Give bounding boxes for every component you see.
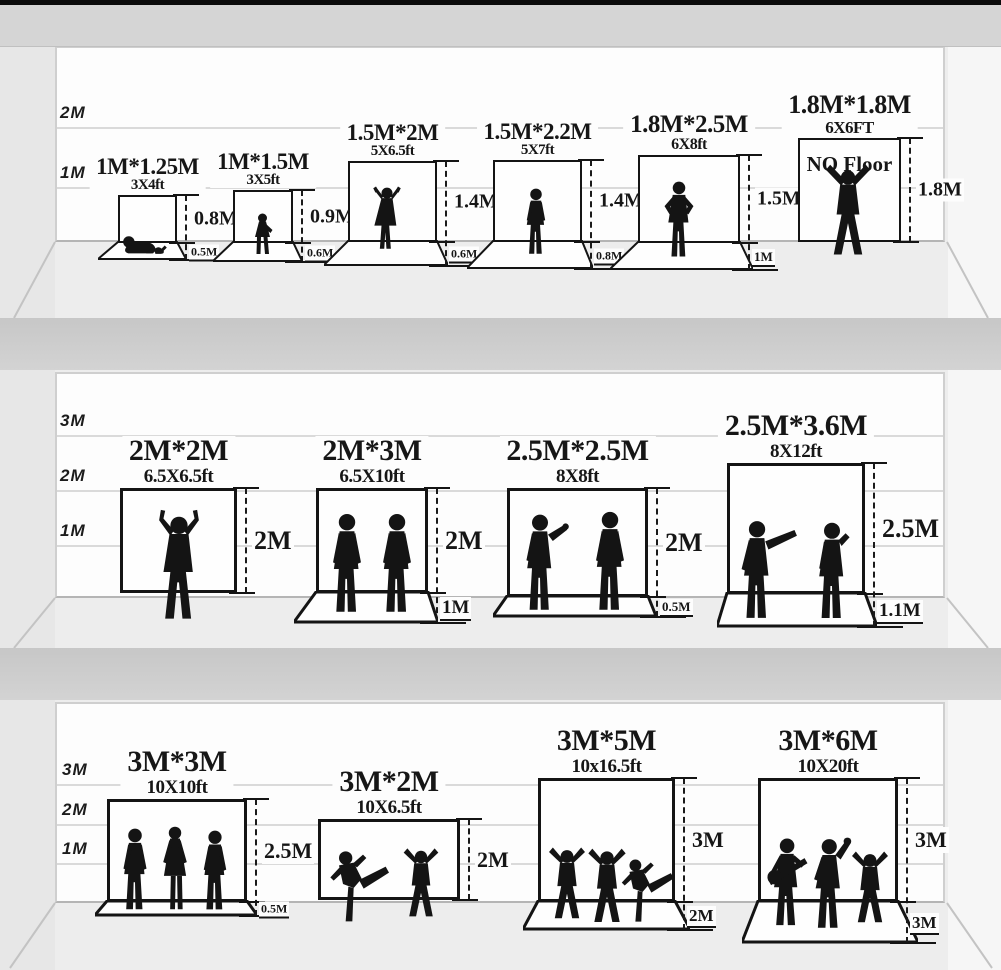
backdrop-size-ft-label: 10X10ft xyxy=(127,778,226,797)
backdrop-title: 1M*1.25M3X4ft xyxy=(89,155,206,193)
dimension-line xyxy=(748,155,750,270)
backdrop-size-label: 1.8M*1.8M xyxy=(788,90,911,119)
axis-label: 1M xyxy=(60,521,86,541)
child-arms-up-figure xyxy=(365,186,409,252)
backdrop-kit: 1.8M*2.5M6X8ft1.5M1M xyxy=(638,155,740,243)
backdrop-title: 2.5M*3.6M8X12ft xyxy=(718,411,874,461)
backdrop-kit: 3M*5M10x16.5ft3M2M xyxy=(538,778,675,902)
dimension-tick xyxy=(640,596,666,598)
backdrop-size-ft-label: 5X6.5ft xyxy=(347,144,439,159)
backdrop-size-label: 1.8M*2.5M xyxy=(630,111,748,138)
height-dimension-label: 3M xyxy=(913,827,949,853)
dancer-kick-figure xyxy=(620,824,678,924)
axis-label: 3M xyxy=(60,411,86,431)
dimension-tick xyxy=(429,241,455,243)
backdrop-size-label: 2M*2M xyxy=(129,434,228,467)
dimension-line xyxy=(255,799,257,916)
backdrop-kit: 3M*3M10X10ft2.5M0.5M xyxy=(107,799,247,902)
height-dimension: 2M1M xyxy=(428,488,498,623)
dimension-line xyxy=(873,463,875,627)
dimension-tick xyxy=(736,154,762,156)
backdrop-kit: 1.5M*2.2M5X7ft1.4M0.8M xyxy=(493,160,582,242)
dimension-line xyxy=(436,488,438,623)
dancer-arms-up-figure xyxy=(395,842,447,922)
baby-crawling-figure xyxy=(120,231,172,257)
height-dimension-label: 2M xyxy=(252,526,294,556)
dimension-tick xyxy=(229,592,255,594)
dimension-tick xyxy=(578,159,604,161)
floor-dimension-label: 1M xyxy=(440,597,471,621)
backdrop-kit: 2.5M*3.6M8X12ft2.5M1.1M xyxy=(727,463,865,594)
backdrop-size-ft-label: 10X6.5ft xyxy=(339,798,438,817)
dimension-line xyxy=(909,138,911,242)
man-standing-figure xyxy=(194,830,236,912)
child-standing-figure xyxy=(519,188,553,256)
backdrop-title: 1.5M*2M5X6.5ft xyxy=(340,121,446,159)
height-dimension: 2M xyxy=(237,488,307,593)
backdrop-kit: 2M*2M6.5X6.5ft2M xyxy=(120,488,237,593)
backdrop-size-comparison-infographic: 2M1M1M*1.25M3X4ft0.8M0.5M1M*1.5M3X5ft0.9… xyxy=(0,0,1001,970)
backdrop-size-ft-label: 6X6FT xyxy=(788,119,911,136)
dimension-tick xyxy=(456,818,482,820)
dimension-tick xyxy=(893,241,919,243)
man-pointing-figure xyxy=(731,516,801,622)
dimension-line xyxy=(590,160,592,269)
height-dimension: 1.8M xyxy=(901,138,971,242)
backdrop-title: 3M*3M10X10ft xyxy=(120,747,233,797)
dancer-arms-up-figure xyxy=(843,826,897,928)
backdrop-kit: 1.8M*1.8M6X6FTNO Floor1.8M xyxy=(798,138,901,242)
axis-label: 1M xyxy=(62,839,88,859)
dimension-tick xyxy=(173,194,199,196)
backdrop-title: 1.8M*2.5M6X8ft xyxy=(623,112,755,154)
dimension-line xyxy=(301,190,303,262)
dimension-tick xyxy=(890,942,936,944)
dimension-tick xyxy=(857,626,903,628)
dimension-tick xyxy=(857,593,883,595)
man-cheering-figure xyxy=(817,164,879,258)
dimension-line xyxy=(906,778,908,943)
backdrop-size-label: 3M*6M xyxy=(778,724,877,757)
height-dimension-label: 2.5M xyxy=(262,838,314,864)
floor-dimension-label: 2M xyxy=(687,906,716,928)
backdrop-title: 2M*3M6.5X10ft xyxy=(315,436,428,486)
man-phone-figure xyxy=(808,514,856,622)
backdrop-title: 2M*2M6.5X6.5ft xyxy=(122,436,235,486)
backdrop-size-label: 1M*1.25M xyxy=(96,154,199,179)
woman-standing-figure xyxy=(153,826,197,912)
height-dimension-label: 2M xyxy=(443,526,485,556)
dimension-line xyxy=(468,819,470,900)
dimension-tick xyxy=(285,242,311,244)
backdrop-size-label: 3M*2M xyxy=(339,765,438,798)
dimension-line xyxy=(445,161,447,266)
backdrop-size-label: 3M*3M xyxy=(127,745,226,778)
height-dimension: 3M2M xyxy=(675,778,745,930)
backdrop-size-label: 2M*3M xyxy=(322,434,421,467)
backdrop-kit: 2.5M*2.5M8X8ft2M0.5M xyxy=(507,488,648,597)
axis-label: 1M xyxy=(60,163,86,183)
axis-label: 2M xyxy=(60,466,86,486)
dimension-tick xyxy=(289,189,315,191)
backdrop-size-ft-label: 6.5X6.5ft xyxy=(129,467,228,486)
backdrop-kit: 1.5M*2M5X6.5ft1.4M0.6M xyxy=(348,161,437,242)
backdrop-kit: 3M*2M10X6.5ft2M xyxy=(318,819,460,900)
height-dimension: 3M3M xyxy=(898,778,968,943)
dancer-kick-figure xyxy=(323,848,399,924)
dimension-tick xyxy=(233,487,259,489)
floor-dimension-label: 1.1M xyxy=(877,600,923,624)
height-dimension-label: 1.8M xyxy=(916,179,964,202)
height-dimension: 2.5M0.5M xyxy=(247,799,317,916)
axis-label: 3M xyxy=(62,760,88,780)
backdrop-size-ft-label: 5X7ft xyxy=(484,143,592,158)
toddler-figure xyxy=(246,213,280,257)
dimension-tick xyxy=(452,899,478,901)
dimension-tick xyxy=(574,241,600,243)
floor-dimension-label: 1M xyxy=(752,249,775,267)
backdrop-size-label: 1.5M*2M xyxy=(347,120,439,145)
backdrop-kit: 1M*1.25M3X4ft0.8M0.5M xyxy=(118,195,177,243)
man-standing-figure xyxy=(113,828,157,912)
shelf-separator xyxy=(0,318,1001,370)
backdrop-size-ft-label: 8X12ft xyxy=(725,442,867,461)
man-standing-figure xyxy=(374,509,420,615)
backdrop-kit: 2M*3M6.5X10ft2M1M xyxy=(316,488,428,593)
backdrop-title: 3M*6M10X20ft xyxy=(771,726,884,776)
backdrop-title: 3M*5M10x16.5ft xyxy=(550,726,663,776)
backdrop-kit: 1M*1.5M3X5ft0.9M0.6M xyxy=(233,190,293,243)
floor-dimension-label: 0.5M xyxy=(259,902,289,919)
dimension-tick xyxy=(894,777,920,779)
backdrop-size-label: 2.5M*3.6M xyxy=(725,409,867,442)
backdrop-size-ft-label: 10X20ft xyxy=(778,757,877,776)
dimension-tick xyxy=(897,137,923,139)
height-dimension-label: 3M xyxy=(690,827,726,853)
dimension-tick xyxy=(732,242,758,244)
height-dimension: 2M0.5M xyxy=(648,488,718,617)
dimension-tick xyxy=(732,269,778,271)
height-dimension: 2M xyxy=(460,819,530,900)
dimension-tick xyxy=(420,622,466,624)
floor-dimension-label: 0.5M xyxy=(660,599,693,617)
backdrop-size-label: 1.5M*2.2M xyxy=(484,119,592,144)
dimension-tick xyxy=(243,798,269,800)
man-victory-figure xyxy=(143,509,215,623)
backdrop-size-label: 2.5M*2.5M xyxy=(506,434,648,467)
height-dimension-label: 2M xyxy=(663,528,705,558)
dimension-tick xyxy=(420,592,446,594)
dimension-tick xyxy=(671,777,697,779)
dimension-line xyxy=(683,778,685,930)
dimension-tick xyxy=(424,487,450,489)
height-dimension-label: 2.5M xyxy=(880,514,941,544)
dimension-line xyxy=(185,195,187,260)
backdrop-size-ft-label: 8X8ft xyxy=(506,467,648,486)
backdrop-size-ft-label: 3X5ft xyxy=(217,173,309,188)
floor-dimension-label: 3M xyxy=(910,913,939,935)
backdrop-size-ft-label: 6.5X10ft xyxy=(322,467,421,486)
backdrop-size-ft-label: 3X4ft xyxy=(96,178,199,193)
height-dimension-label: 2M xyxy=(475,847,511,873)
height-dimension: 2.5M1.1M xyxy=(865,463,935,627)
backdrop-size-label: 3M*5M xyxy=(557,724,656,757)
dimension-tick xyxy=(861,462,887,464)
man-standing-figure xyxy=(585,511,635,613)
backdrop-size-ft-label: 10x16.5ft xyxy=(557,757,656,776)
shelf-separator xyxy=(0,648,1001,700)
backdrop-size-ft-label: 6X8ft xyxy=(630,137,748,153)
dimension-tick xyxy=(433,160,459,162)
height-dimension-label: 1.5M xyxy=(755,188,803,211)
dimension-line xyxy=(245,488,247,593)
backdrop-title: 3M*2M10X6.5ft xyxy=(332,767,445,817)
axis-label: 2M xyxy=(60,103,86,123)
backdrop-title: 1M*1.5M3X5ft xyxy=(210,150,316,188)
backdrop-title: 2.5M*2.5M8X8ft xyxy=(499,436,655,486)
backdrop-kit: 3M*6M10X20ft3M3M xyxy=(758,778,898,902)
backdrop-title: 1.8M*1.8M6X6FT xyxy=(781,92,918,136)
man-standing-figure xyxy=(324,509,370,615)
teen-hands-on-hips-figure xyxy=(658,181,700,259)
dimension-tick xyxy=(644,487,670,489)
backdrop-size-label: 1M*1.5M xyxy=(217,149,309,174)
axis-label: 2M xyxy=(62,800,88,820)
man-gesturing-figure xyxy=(516,511,572,613)
backdrop-title: 1.5M*2.2M5X7ft xyxy=(477,120,599,158)
dimension-tick xyxy=(667,929,713,931)
